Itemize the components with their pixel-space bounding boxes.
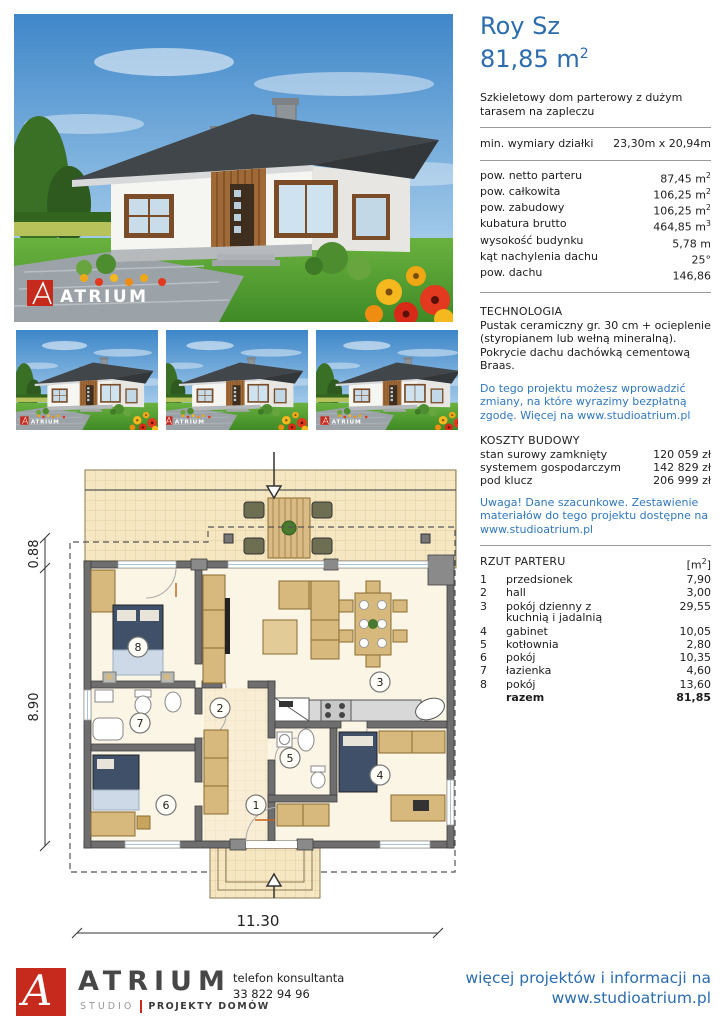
technology-body: Pustak ceramiczny gr. 30 cm + ocieplenie… — [480, 319, 711, 373]
divider — [480, 292, 711, 293]
room-row: 4gabinet10,05 — [480, 626, 711, 638]
changes-note[interactable]: Do tego projektu możesz wprowadzić zmian… — [480, 382, 711, 423]
room-row: 8pokój13,60 — [480, 679, 711, 691]
room-row: 3pokój dzienny z kuchnią i jadalnią29,55 — [480, 601, 711, 625]
floor-plan: 1 2 3 4 5 6 7 8 0.88 8.90 11.30 — [25, 450, 465, 954]
website-link[interactable]: więcej projektów i informacji na www.stu… — [465, 968, 711, 1008]
svg-text:5: 5 — [287, 752, 294, 765]
plot-size-row: min. wymiary działki23,30m x 20,94m — [480, 137, 711, 151]
red-divider — [140, 1000, 142, 1013]
divider — [480, 160, 711, 161]
costs-heading: KOSZTY BUDOWY — [480, 434, 711, 448]
technology-section: TECHNOLOGIA Pustak ceramiczny gr. 30 cm … — [480, 305, 711, 422]
thumbnail-2[interactable] — [166, 330, 308, 430]
brand-name: ATRIUM — [78, 966, 231, 997]
room-row: 7łazienka4,60 — [480, 665, 711, 677]
divider — [480, 127, 711, 128]
entry-porch — [210, 848, 320, 898]
svg-text:4: 4 — [377, 769, 384, 782]
svg-text:7: 7 — [137, 717, 144, 730]
spec-list: pow. netto parteru87,45 m2 pow. całkowit… — [480, 170, 711, 284]
project-description: Szkieletowy dom parterowy z dużym tarase… — [480, 91, 711, 118]
atrium-logo[interactable]: A — [16, 968, 66, 1016]
svg-text:11.30: 11.30 — [237, 912, 280, 930]
main-photo — [14, 14, 453, 322]
svg-text:8: 8 — [135, 641, 142, 654]
house-render-front — [14, 14, 453, 322]
svg-text:3: 3 — [377, 676, 384, 689]
project-title: Roy Sz 81,85 m2 — [480, 12, 711, 73]
footer: A ATRIUM STUDIOPROJEKTY DOMÓW telefon ko… — [0, 958, 725, 1024]
costs-section: KOSZTY BUDOWY stan surowy zamknięty120 0… — [480, 434, 711, 536]
consultant-phone: telefon konsultanta 33 822 94 96 — [233, 970, 344, 1002]
rooms-heading: RZUT PARTERU — [480, 555, 566, 572]
room-row: 5kotłownia2,80 — [480, 639, 711, 651]
phone-number[interactable]: 33 822 94 96 — [233, 986, 344, 1002]
room-total-row: razem81,85 — [480, 692, 711, 704]
logo-letter-a: A — [22, 966, 52, 1015]
thumbnail-strip — [16, 330, 460, 430]
svg-text:1: 1 — [253, 799, 260, 812]
svg-text:6: 6 — [163, 799, 170, 812]
thumbnail-3[interactable] — [316, 330, 458, 430]
svg-text:8.90: 8.90 — [27, 693, 42, 722]
spec-column: Roy Sz 81,85 m2 Szkieletowy dom parterow… — [480, 12, 711, 704]
room-schedule: RZUT PARTERU [m2] 1przedsionek7,90 2hall… — [480, 555, 711, 704]
thumbnail-1[interactable] — [16, 330, 158, 430]
divider — [480, 545, 711, 546]
room-row: 2hall3,00 — [480, 587, 711, 599]
catalog-page: ATRIUM Roy Sz 81,85 m2 Szkieletowy dom p… — [0, 0, 725, 1024]
svg-text:2: 2 — [217, 702, 224, 715]
svg-text:0.88: 0.88 — [27, 540, 42, 569]
terrace — [85, 470, 456, 568]
estimate-note[interactable]: Uwaga! Dane szacunkowe. Zestawienie mate… — [480, 496, 711, 537]
room-row: 6pokój10,35 — [480, 652, 711, 664]
technology-heading: TECHNOLOGIA — [480, 305, 711, 319]
room-row: 1przedsionek7,90 — [480, 574, 711, 586]
